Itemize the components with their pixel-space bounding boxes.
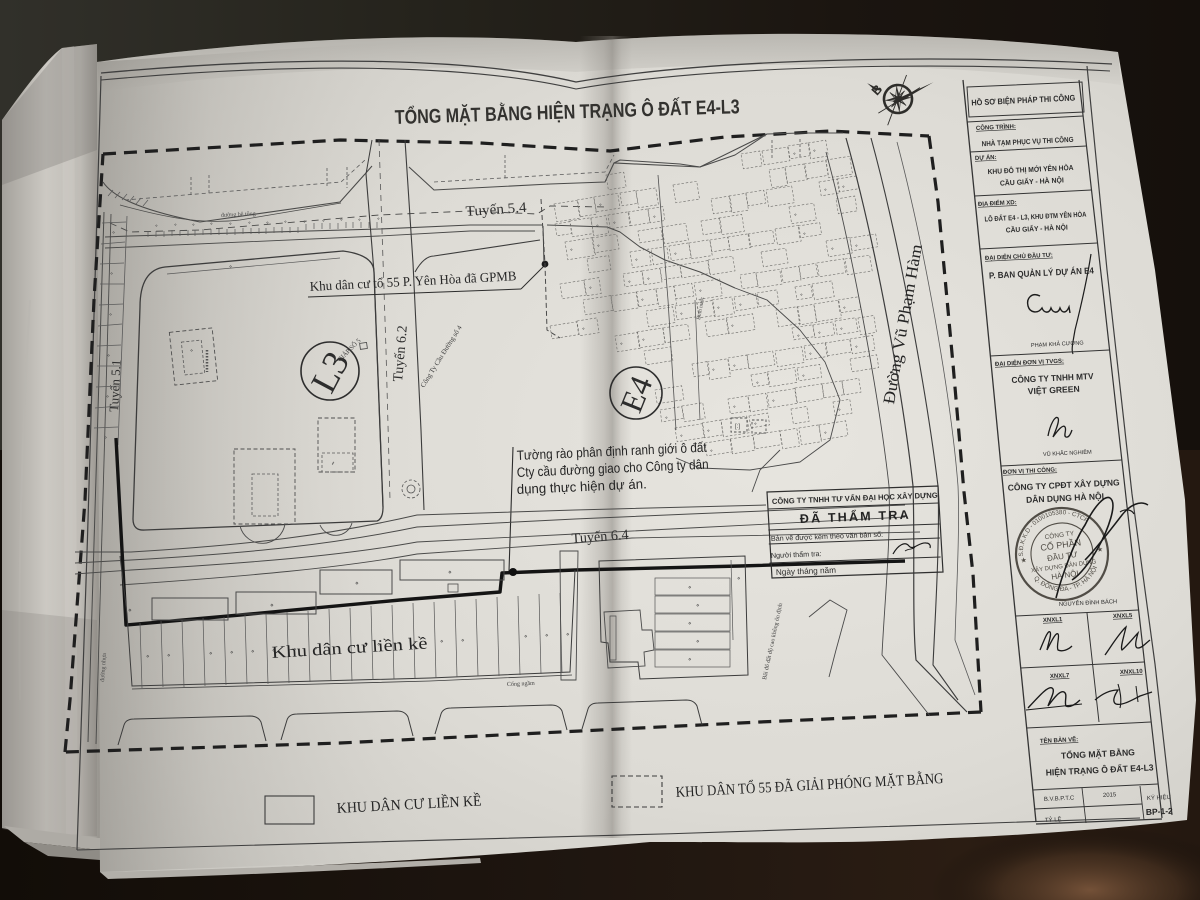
svg-text:⋄: ⋄ — [461, 638, 465, 644]
svg-text:⋄: ⋄ — [739, 302, 742, 307]
svg-text:⋄: ⋄ — [800, 292, 803, 297]
svg-text:⋄: ⋄ — [642, 337, 645, 342]
svg-text:[:]: [:] — [735, 424, 740, 430]
svg-text:⋄: ⋄ — [680, 311, 683, 316]
svg-text:⋄: ⋄ — [628, 279, 631, 284]
svg-text:⋄: ⋄ — [340, 217, 343, 222]
svg-text:⋄: ⋄ — [174, 222, 177, 227]
svg-text:⋄: ⋄ — [688, 657, 692, 663]
svg-text:⋄: ⋄ — [209, 651, 213, 657]
svg-text:⋄: ⋄ — [322, 218, 325, 223]
svg-text:⋄: ⋄ — [696, 603, 700, 609]
svg-text:⋄: ⋄ — [809, 351, 812, 356]
svg-text:⋄: ⋄ — [358, 217, 361, 222]
svg-text:⋄: ⋄ — [794, 212, 797, 217]
svg-text:⋄: ⋄ — [802, 373, 805, 378]
svg-text:⋄: ⋄ — [712, 367, 715, 372]
svg-text:⋄: ⋄ — [717, 305, 720, 310]
svg-text:⋄: ⋄ — [190, 348, 193, 354]
svg-text:⋄: ⋄ — [737, 576, 741, 582]
svg-text:⋄: ⋄ — [155, 223, 158, 228]
svg-text:⋄: ⋄ — [597, 243, 600, 248]
svg-text:⋄: ⋄ — [707, 428, 710, 433]
svg-text:2015: 2015 — [1103, 792, 1117, 799]
svg-text:⋄: ⋄ — [440, 639, 444, 645]
svg-text:⋄: ⋄ — [647, 276, 650, 281]
svg-text:⋄: ⋄ — [248, 220, 251, 225]
svg-text:⋄: ⋄ — [230, 650, 234, 656]
svg-text:★: ★ — [1020, 556, 1027, 565]
svg-text:⋄: ⋄ — [106, 394, 109, 400]
svg-text:⋄: ⋄ — [545, 633, 549, 639]
svg-text:⋄: ⋄ — [146, 654, 150, 660]
svg-text:⋄: ⋄ — [284, 219, 287, 224]
svg-text:⋄: ⋄ — [566, 632, 570, 638]
svg-text:⋄: ⋄ — [107, 353, 110, 359]
svg-text:⋄: ⋄ — [524, 634, 528, 640]
svg-text:⋄: ⋄ — [653, 214, 656, 219]
svg-text:⋄: ⋄ — [596, 223, 599, 228]
svg-text:⋄: ⋄ — [589, 285, 592, 290]
svg-text:DỰ ÁN:: DỰ ÁN: — [975, 154, 997, 162]
svg-text:⋄: ⋄ — [229, 221, 232, 226]
svg-text:⋄: ⋄ — [772, 398, 775, 403]
svg-text:⋄: ⋄ — [756, 380, 759, 385]
svg-text:⋄: ⋄ — [674, 251, 677, 256]
svg-text:⋄: ⋄ — [266, 220, 269, 225]
svg-text:⋄: ⋄ — [797, 333, 800, 338]
svg-text:⋄: ⋄ — [110, 271, 113, 277]
svg-text:⋄: ⋄ — [855, 344, 858, 349]
svg-text:XNXL10: XNXL10 — [1120, 669, 1144, 676]
svg-text:⋄: ⋄ — [838, 407, 841, 412]
svg-text:⋄: ⋄ — [377, 216, 380, 221]
svg-text:⋄: ⋄ — [855, 243, 858, 248]
svg-text:⋄: ⋄ — [620, 341, 623, 346]
svg-text:⋄: ⋄ — [824, 187, 827, 192]
svg-text:⋄: ⋄ — [112, 230, 115, 236]
svg-text:⋄: ⋄ — [303, 219, 306, 224]
svg-text:⋄: ⋄ — [192, 222, 195, 227]
svg-text:⋄: ⋄ — [355, 581, 359, 587]
svg-text:⋄: ⋄ — [813, 148, 816, 153]
svg-text:⋄: ⋄ — [699, 288, 702, 293]
svg-text:⋄: ⋄ — [210, 221, 213, 226]
svg-text:⋄: ⋄ — [733, 363, 736, 368]
svg-text:⋄: ⋄ — [842, 184, 845, 189]
svg-text:XNXL1: XNXL1 — [1043, 617, 1063, 624]
svg-text:⋄: ⋄ — [680, 433, 683, 438]
svg-text:XNXL5: XNXL5 — [1113, 613, 1133, 620]
svg-text:⋄: ⋄ — [840, 326, 843, 331]
svg-text:⋄: ⋄ — [710, 448, 713, 453]
svg-text:⋄: ⋄ — [251, 649, 255, 655]
svg-text:⋄: ⋄ — [803, 231, 806, 236]
svg-text:⋄: ⋄ — [270, 603, 274, 609]
svg-text:⋄: ⋄ — [831, 246, 834, 251]
svg-text:⋄: ⋄ — [613, 220, 616, 225]
svg-text:⋄: ⋄ — [688, 585, 692, 591]
svg-text:⋄: ⋄ — [696, 639, 700, 645]
svg-text:⋄: ⋄ — [570, 247, 573, 252]
svg-text:⋄: ⋄ — [641, 297, 644, 302]
svg-text:⋄: ⋄ — [229, 264, 232, 270]
svg-text:Cống ngầm: Cống ngầm — [507, 680, 535, 688]
svg-text:⋄: ⋄ — [582, 326, 585, 331]
svg-text:⋄: ⋄ — [448, 570, 452, 576]
svg-text:⋄: ⋄ — [167, 653, 171, 659]
svg-text:XNXL7: XNXL7 — [1050, 673, 1070, 680]
svg-text:⋄: ⋄ — [128, 608, 132, 614]
svg-text:⋄: ⋄ — [793, 151, 796, 156]
svg-text:⋄: ⋄ — [824, 430, 827, 435]
svg-text:⋄: ⋄ — [635, 257, 638, 262]
svg-text:⋄: ⋄ — [599, 202, 602, 207]
svg-text:⋄: ⋄ — [688, 621, 692, 627]
svg-text:BP-1-2: BP-1-2 — [1146, 806, 1174, 817]
svg-text:⋄: ⋄ — [818, 330, 821, 335]
svg-text:⋄: ⋄ — [665, 415, 668, 420]
svg-text:⋄: ⋄ — [754, 421, 757, 426]
svg-text:⋄: ⋄ — [733, 404, 736, 409]
svg-text:⋄: ⋄ — [843, 305, 846, 310]
svg-text:⋄: ⋄ — [731, 323, 734, 328]
svg-text:⋄: ⋄ — [109, 312, 112, 318]
svg-text:⋄: ⋄ — [104, 435, 107, 441]
